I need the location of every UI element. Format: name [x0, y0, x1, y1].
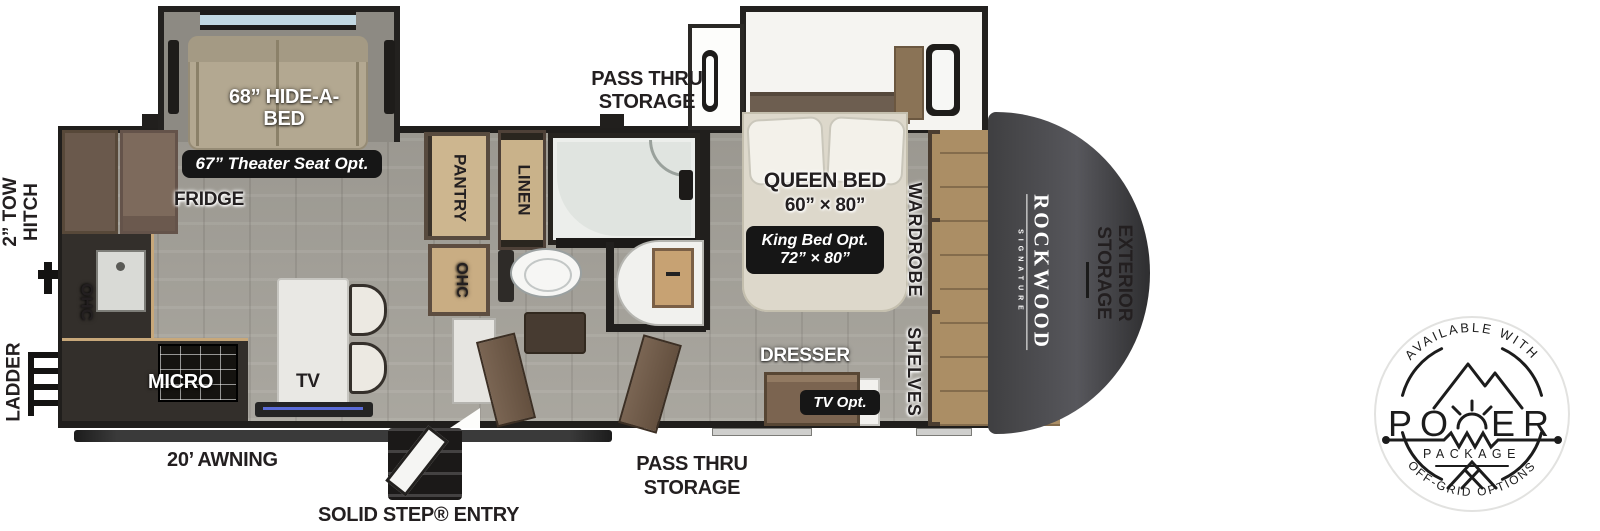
ohc-label: OHC	[452, 262, 470, 298]
vanity	[616, 240, 704, 326]
exterior-storage-label: EXTERIOR STORAGE	[1092, 224, 1134, 321]
dresser-label: DRESSER	[760, 346, 850, 367]
hide-a-bed-label: 68” HIDE-A- BED	[196, 86, 372, 130]
bath-partition-wall	[606, 242, 614, 330]
storage-hatch-2	[916, 428, 972, 436]
bedroom-window	[926, 44, 960, 116]
hall-desk	[524, 312, 586, 354]
pass-thru-top-label: PASS THRU STORAGE	[586, 68, 708, 114]
power-package-badge: AVAILABLE WITH PO ER PACKAGE OFF-GRID OP…	[1372, 312, 1572, 518]
shelves-label: SHELVES	[903, 327, 923, 417]
tv-label: TV	[296, 372, 320, 393]
tv-unit	[255, 402, 373, 417]
wardrobe-label: WARDROBE	[904, 183, 924, 298]
ladder-label: LADDER	[5, 342, 26, 421]
tow-hitch-label: 2” TOW HITCH	[1, 177, 43, 246]
queen-bed-label: QUEEN BED 60” × 80”	[742, 170, 908, 216]
toilet	[510, 248, 582, 298]
nightstand	[894, 46, 924, 120]
slideout-window-right	[384, 40, 395, 114]
solid-step-label: SOLID STEP® ENTRY	[318, 505, 519, 527]
badge-power-right: ER	[1491, 403, 1557, 444]
center-tick	[1086, 262, 1089, 298]
kitchen-sink	[96, 250, 146, 312]
badge-power-left: PO	[1388, 403, 1456, 444]
pass-thru-bottom-label: PASS THRU STORAGE	[630, 452, 754, 500]
tow-hitch-icon	[38, 262, 58, 294]
storage-hatch-1	[712, 428, 812, 436]
pantry-label: PANTRY	[450, 154, 469, 222]
rear-corner-cabinet	[62, 130, 118, 234]
fridge-cabinet	[120, 130, 178, 234]
theater-seat-option-pill: 67” Theater Seat Opt.	[182, 150, 382, 178]
awning-label: 20’ AWNING	[167, 450, 278, 472]
kitchen-ohc-label: OHC	[77, 283, 96, 321]
fridge-label: FRIDGE	[174, 190, 244, 211]
linen-label: LINEN	[514, 165, 533, 216]
tv-option-pill: TV Opt.	[800, 390, 880, 415]
floorplan-canvas: 2” TOW HITCH LADDER 68” HIDE-A- BED 67” …	[0, 0, 1600, 531]
slideout-window-top	[200, 10, 356, 30]
badge-package-text: PACKAGE	[1423, 447, 1521, 461]
slideout-window-left	[168, 40, 179, 114]
brand-logo: ROCKWOOD SIGNATURE	[1016, 194, 1053, 350]
shower	[548, 133, 700, 245]
awning-rail	[74, 430, 612, 442]
micro-label: MICRO	[148, 372, 213, 394]
roof-stub-mid	[600, 114, 624, 128]
king-bed-option-pill: King Bed Opt. 72” × 80”	[746, 226, 884, 274]
